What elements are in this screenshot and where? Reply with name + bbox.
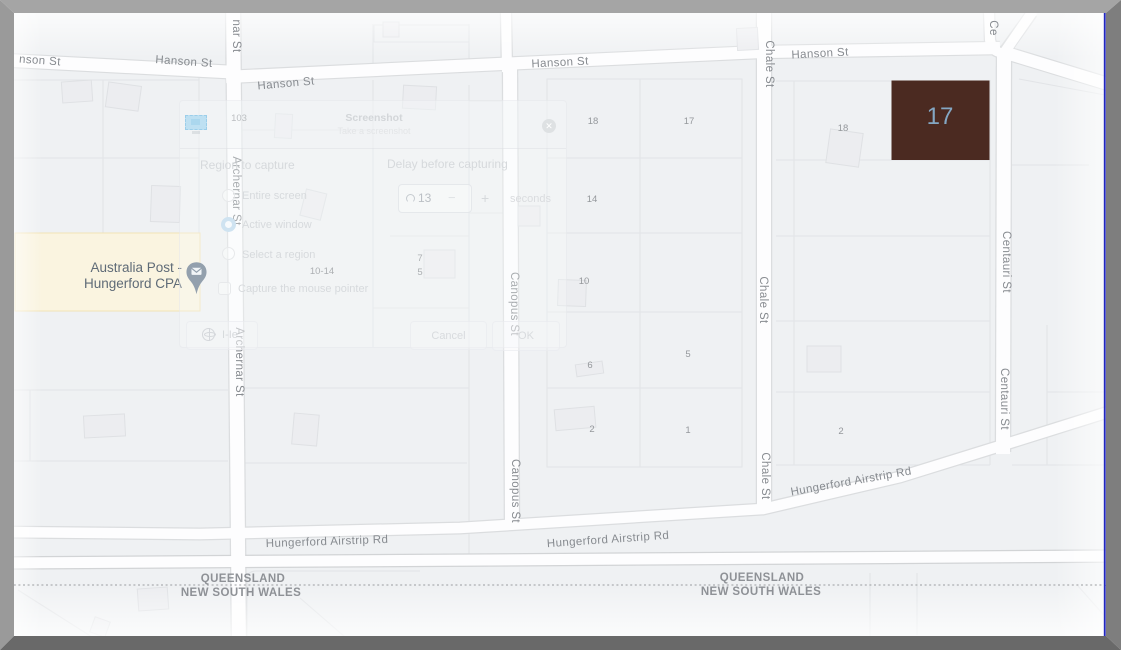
- svg-text:Centauri St: Centauri St: [1000, 231, 1012, 293]
- svg-text:NEW SOUTH WALES: NEW SOUTH WALES: [181, 587, 301, 599]
- svg-text:NEW SOUTH WALES: NEW SOUTH WALES: [701, 586, 821, 598]
- svg-text:nar St: nar St: [230, 19, 242, 52]
- svg-text:2: 2: [838, 426, 843, 437]
- svg-text:18: 18: [838, 123, 849, 134]
- svg-text:18: 18: [588, 116, 599, 127]
- svg-text:QUEENSLAND: QUEENSLAND: [720, 572, 805, 584]
- svg-text:10: 10: [579, 276, 590, 287]
- svg-text:QUEENSLAND: QUEENSLAND: [201, 573, 286, 585]
- svg-text:Canopus St: Canopus St: [509, 459, 521, 523]
- svg-text:6: 6: [587, 360, 592, 371]
- svg-text:Chale St: Chale St: [757, 276, 769, 324]
- svg-text:14: 14: [587, 194, 598, 205]
- svg-text:2: 2: [589, 424, 594, 435]
- svg-text:1: 1: [685, 425, 690, 436]
- svg-text:Australia Post -: Australia Post -: [90, 260, 182, 275]
- svg-text:Chale St: Chale St: [763, 40, 775, 88]
- svg-text:Centauri St: Centauri St: [998, 368, 1010, 430]
- svg-text:Chale St: Chale St: [759, 452, 771, 500]
- svg-text:Hungerford CPA: Hungerford CPA: [84, 276, 182, 291]
- svg-text:Ce: Ce: [987, 20, 999, 36]
- svg-text:17: 17: [684, 116, 695, 127]
- svg-text:5: 5: [685, 349, 690, 360]
- svg-text:17: 17: [927, 103, 954, 130]
